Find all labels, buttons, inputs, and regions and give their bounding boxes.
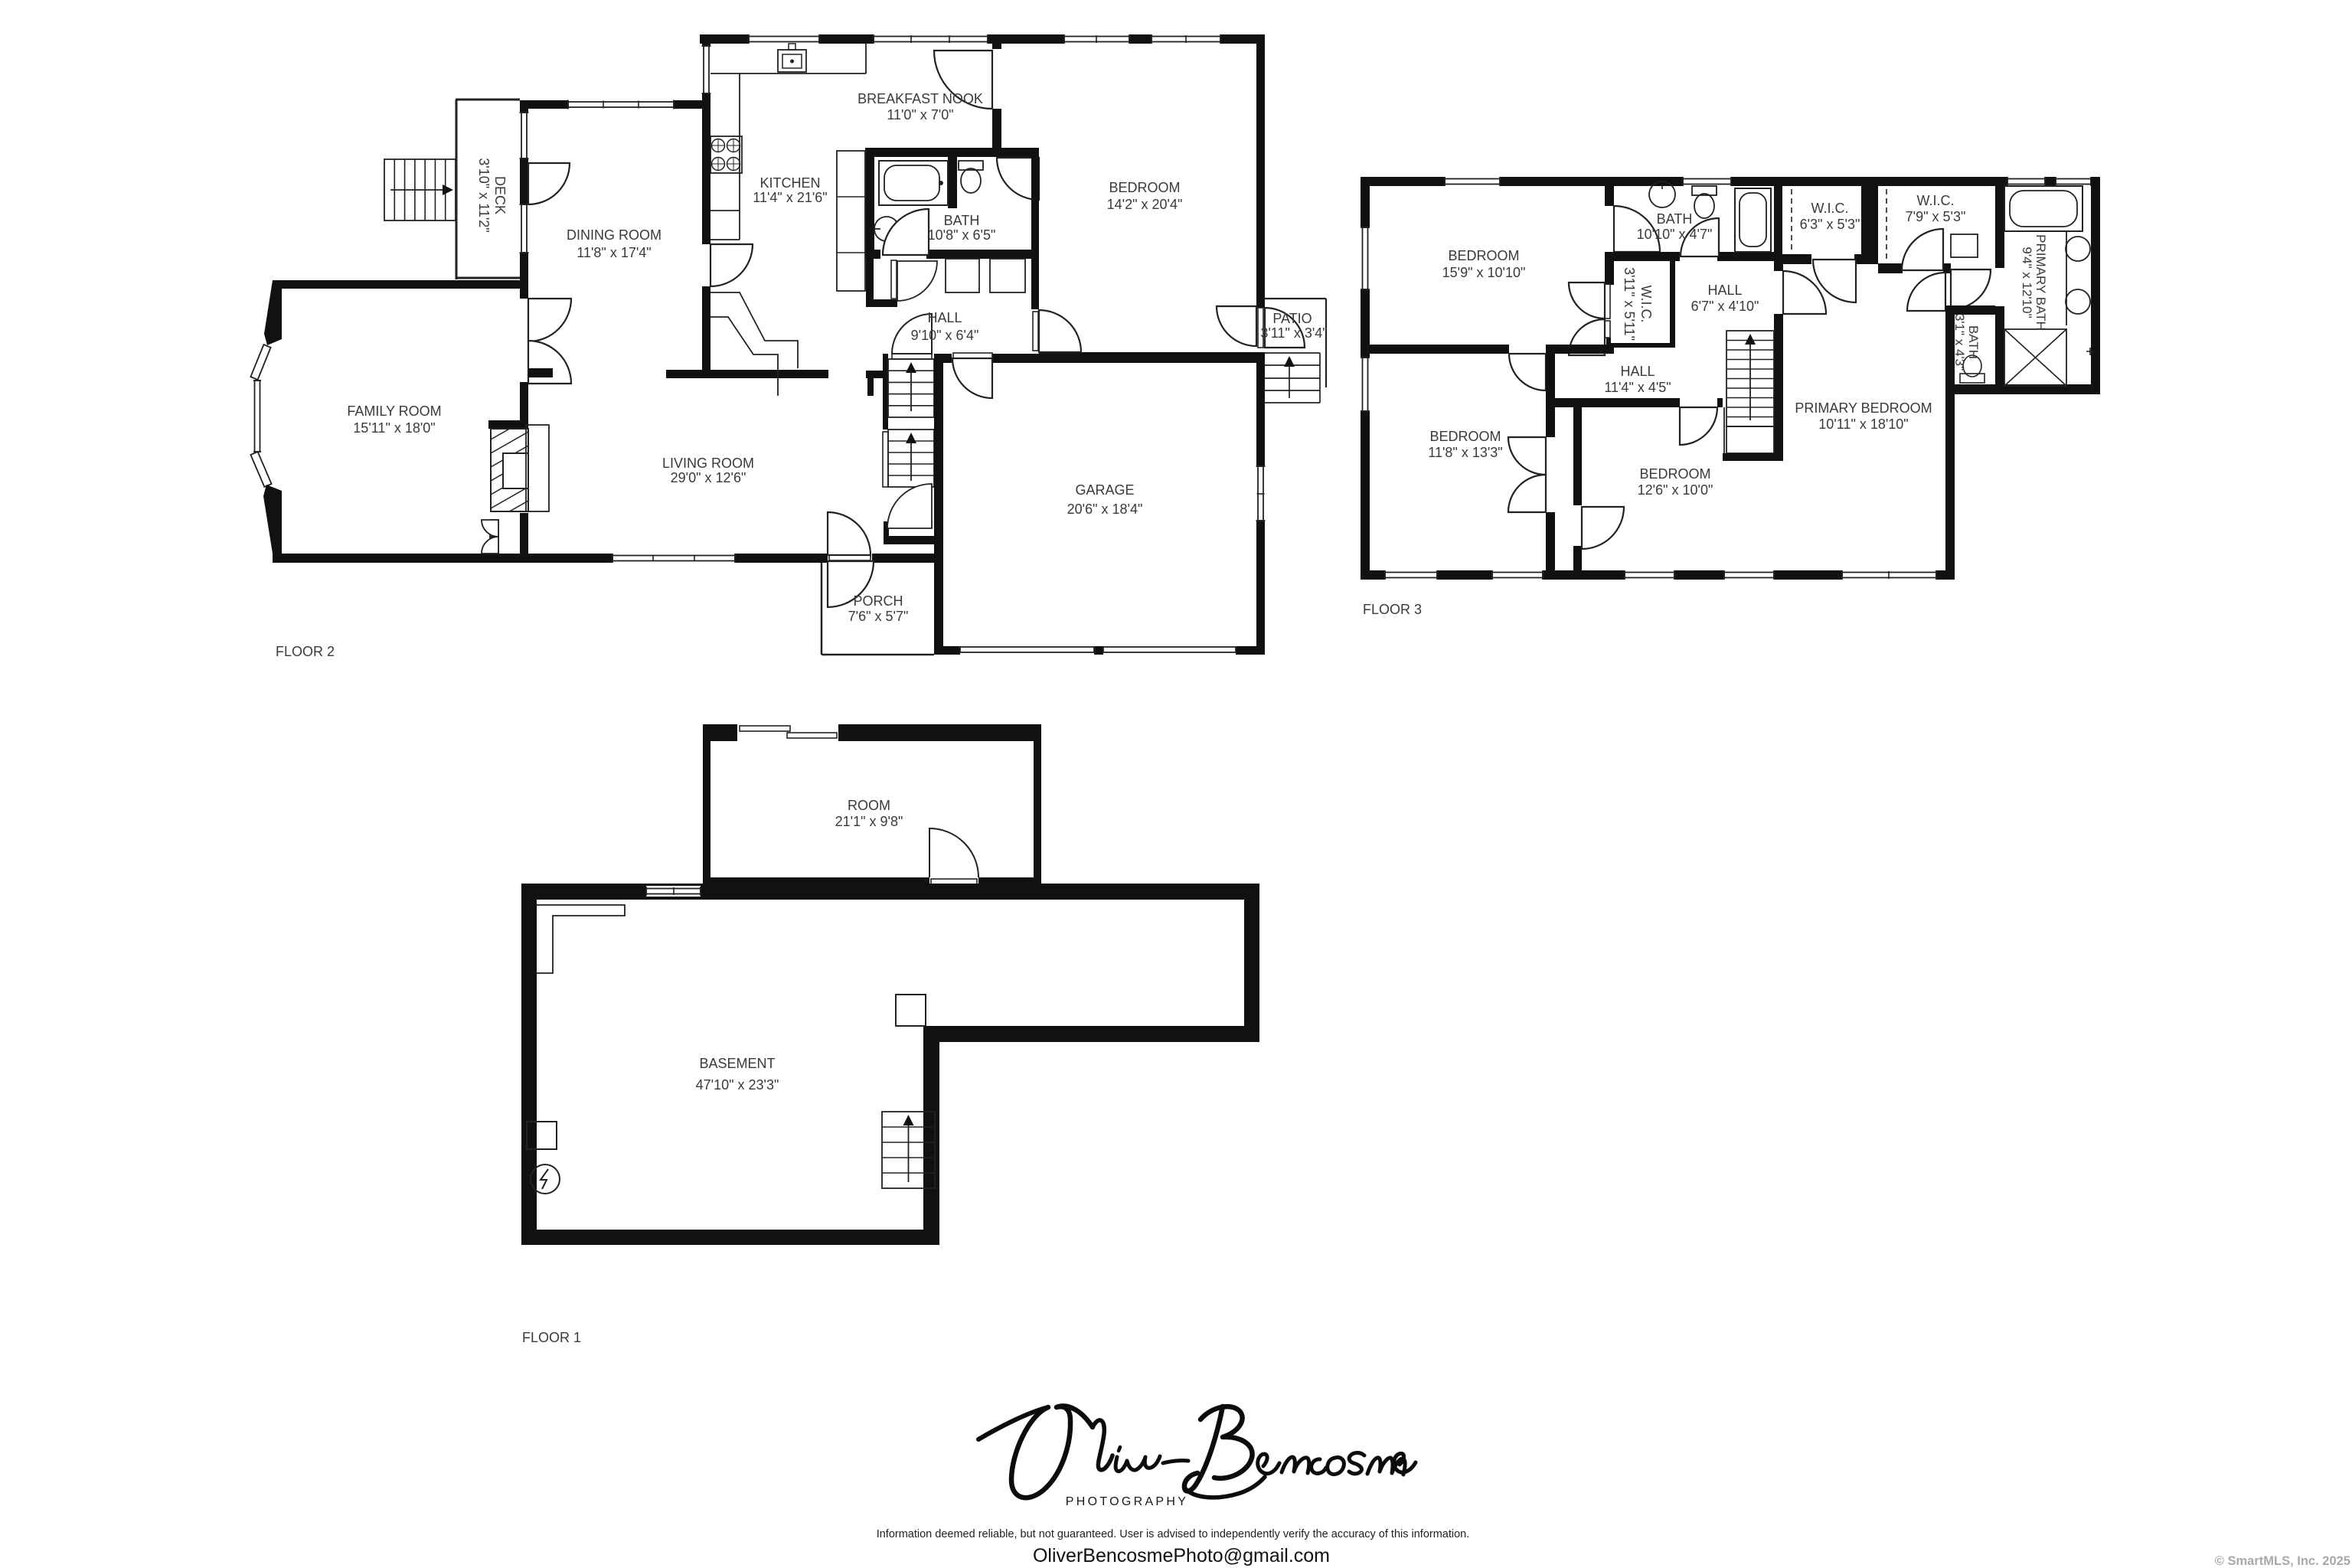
svg-text:11'8" x 17'4": 11'8" x 17'4" (577, 245, 651, 260)
svg-text:BASEMENT: BASEMENT (699, 1056, 775, 1071)
svg-text:PHOTOGRAPHY: PHOTOGRAPHY (1066, 1495, 1188, 1508)
svg-text:PATIO: PATIO (1272, 311, 1312, 326)
svg-text:9'4" x 12'10": 9'4" x 12'10" (2020, 247, 2034, 318)
svg-text:10'8" x 6'5": 10'8" x 6'5" (928, 227, 996, 243)
svg-text:3'10" x 11'2": 3'10" x 11'2" (476, 158, 492, 232)
svg-text:20'6" x 18'4": 20'6" x 18'4" (1067, 501, 1143, 517)
svg-text:BEDROOM: BEDROOM (1448, 248, 1519, 263)
svg-text:DINING ROOM: DINING ROOM (567, 227, 661, 243)
svg-text:11'4" x 21'6": 11'4" x 21'6" (753, 190, 827, 205)
svg-text:FLOOR 1: FLOOR 1 (522, 1330, 581, 1345)
svg-text:29'0" x 12'6": 29'0" x 12'6" (671, 470, 746, 485)
svg-text:BATH: BATH (1657, 211, 1693, 227)
svg-text:3'11" x 3'4": 3'11" x 3'4" (1260, 325, 1327, 341)
svg-text:3'11" x 5'11": 3'11" x 5'11" (1622, 267, 1637, 341)
svg-text:Information deemed reliable, b: Information deemed reliable, but not gua… (877, 1528, 1470, 1540)
svg-text:PRIMARY BEDROOM: PRIMARY BEDROOM (1795, 400, 1932, 416)
svg-text:W.I.C.: W.I.C. (1811, 201, 1849, 216)
svg-text:PRIMARY BATH: PRIMARY BATH (2033, 234, 2048, 331)
svg-text:BREAKFAST NOOK: BREAKFAST NOOK (857, 91, 983, 106)
svg-text:ROOM: ROOM (848, 798, 890, 813)
svg-text:10'10" x 4'7": 10'10" x 4'7" (1637, 227, 1713, 242)
svg-text:W.I.C.: W.I.C. (1917, 193, 1955, 208)
svg-text:15'11" x 18'0": 15'11" x 18'0" (353, 420, 435, 436)
svg-text:BATH: BATH (944, 213, 980, 228)
svg-text:FLOOR 2: FLOOR 2 (276, 644, 335, 659)
svg-text:FLOOR 3: FLOOR 3 (1363, 602, 1422, 617)
svg-text:7'6" x 5'7": 7'6" x 5'7" (848, 609, 909, 624)
svg-text:6'7" x 4'10": 6'7" x 4'10" (1691, 299, 1759, 314)
svg-text:DECK: DECK (492, 176, 508, 214)
svg-text:LIVING ROOM: LIVING ROOM (662, 456, 754, 471)
svg-text:HALL: HALL (927, 310, 962, 325)
svg-text:FAMILY ROOM: FAMILY ROOM (347, 403, 441, 419)
svg-text:HALL: HALL (1620, 364, 1655, 379)
svg-text:47'10" x 23'3": 47'10" x 23'3" (696, 1077, 779, 1093)
svg-text:11'0" x 7'0": 11'0" x 7'0" (887, 107, 953, 122)
svg-text:10'11" x 18'10": 10'11" x 18'10" (1818, 416, 1908, 432)
svg-text:3'1" x 4'3": 3'1" x 4'3" (1952, 314, 1967, 371)
svg-text:OliverBencosmePhoto@gmail.com: OliverBencosmePhoto@gmail.com (1033, 1545, 1330, 1566)
svg-text:BEDROOM: BEDROOM (1109, 180, 1180, 195)
svg-text:PORCH: PORCH (853, 593, 903, 609)
svg-text:GARAGE: GARAGE (1075, 482, 1134, 498)
svg-text:15'9" x 10'10": 15'9" x 10'10" (1442, 265, 1526, 280)
svg-text:KITCHEN: KITCHEN (759, 175, 820, 191)
svg-text:9'10" x 6'4": 9'10" x 6'4" (911, 328, 979, 343)
svg-text:7'9" x 5'3": 7'9" x 5'3" (1906, 209, 1966, 224)
svg-text:© SmartMLS, Inc. 2025: © SmartMLS, Inc. 2025 (2215, 1554, 2350, 1568)
svg-text:11'4" x 4'5": 11'4" x 4'5" (1604, 380, 1671, 395)
svg-text:11'8" x 13'3": 11'8" x 13'3" (1428, 445, 1502, 460)
svg-text:21'1" x 9'8": 21'1" x 9'8" (835, 814, 903, 829)
svg-text:6'3" x 5'3": 6'3" x 5'3" (1800, 217, 1860, 232)
svg-text:12'6" x 10'0": 12'6" x 10'0" (1638, 482, 1713, 498)
svg-text:14'2" x 20'4": 14'2" x 20'4" (1107, 197, 1183, 212)
svg-text:BEDROOM: BEDROOM (1639, 466, 1710, 482)
svg-text:W.I.C.: W.I.C. (1638, 286, 1654, 323)
svg-text:BEDROOM: BEDROOM (1429, 429, 1501, 444)
svg-text:BATH: BATH (1966, 325, 1981, 359)
svg-text:HALL: HALL (1707, 283, 1742, 298)
